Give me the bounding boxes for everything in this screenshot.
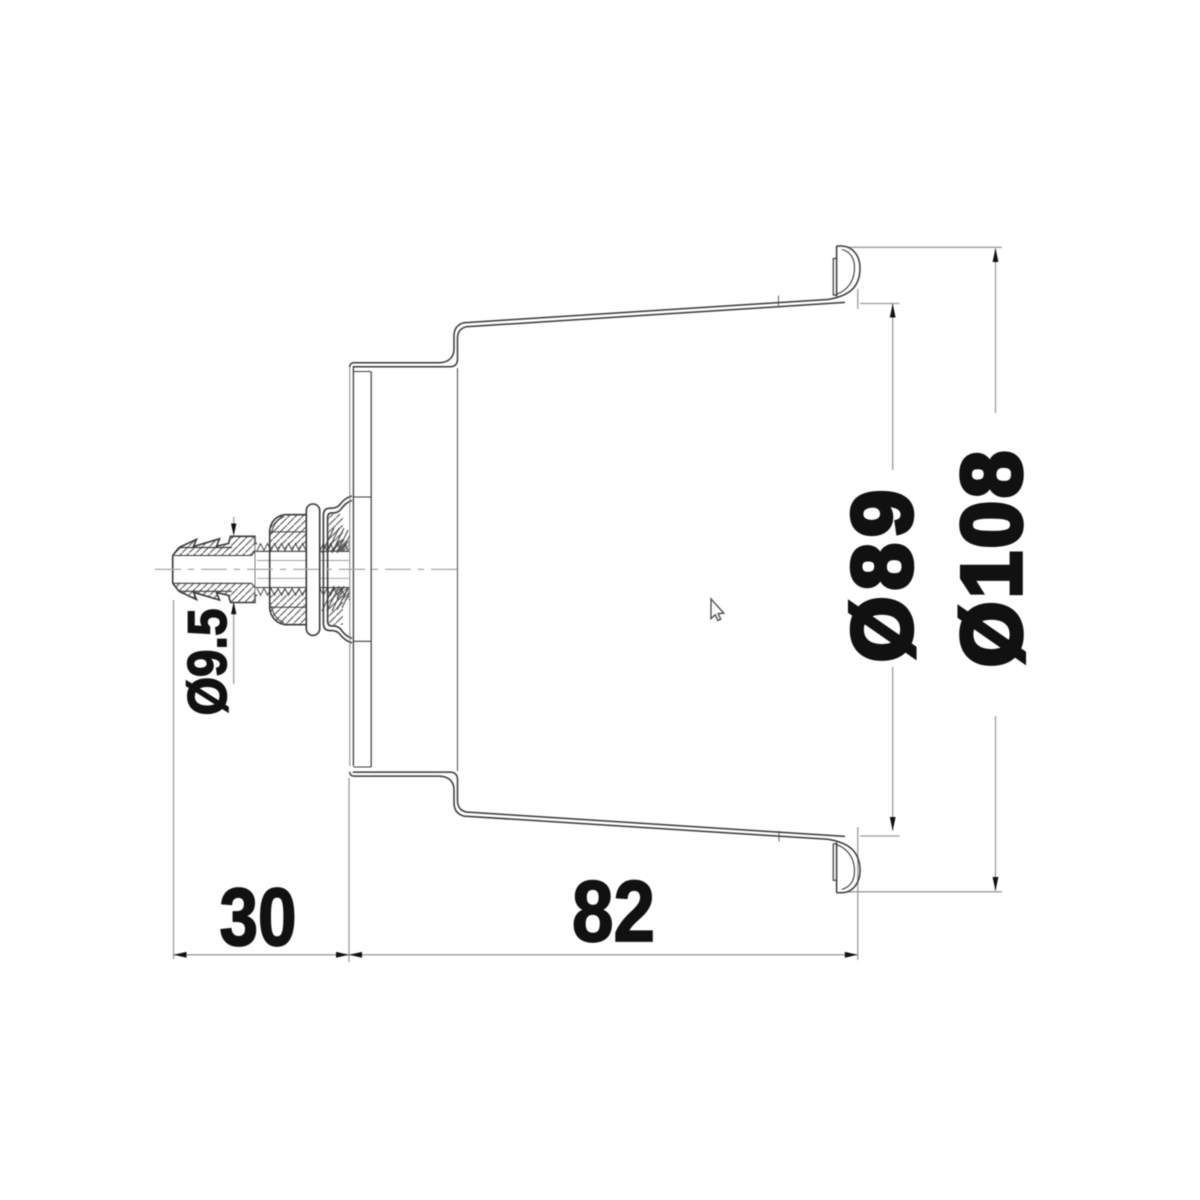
svg-text:82: 82 — [572, 864, 655, 960]
svg-text:30: 30 — [220, 872, 297, 963]
svg-text:Ø108: Ø108 — [945, 451, 1039, 667]
svg-text:Ø9.5: Ø9.5 — [176, 608, 238, 715]
svg-text:Ø89: Ø89 — [835, 490, 929, 662]
